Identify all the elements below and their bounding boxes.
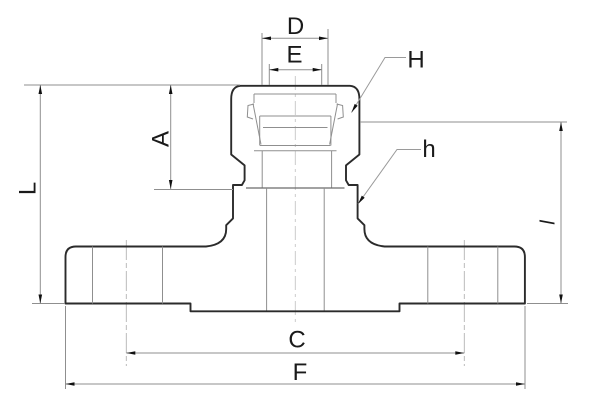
svg-text:h: h [422, 136, 435, 163]
svg-text:L: L [15, 182, 42, 195]
svg-text:D: D [287, 13, 304, 40]
svg-text:F: F [293, 359, 308, 386]
svg-text:A: A [148, 131, 175, 147]
svg-text:l: l [538, 220, 560, 225]
svg-text:E: E [286, 42, 302, 69]
svg-text:C: C [288, 327, 305, 354]
svg-text:H: H [407, 47, 424, 74]
